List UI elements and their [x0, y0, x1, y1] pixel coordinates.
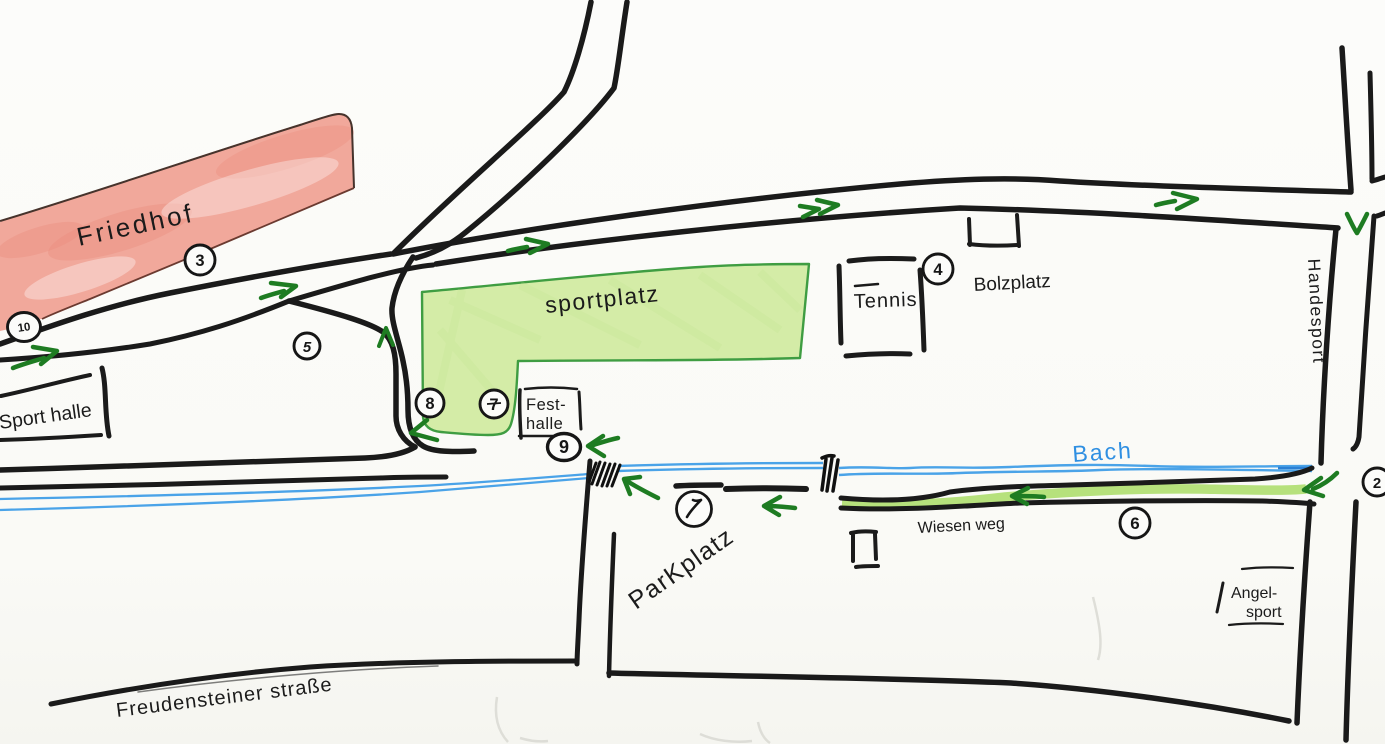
svg-text:5: 5: [303, 339, 312, 356]
svg-text:4: 4: [933, 261, 943, 279]
svg-text:8: 8: [425, 395, 434, 413]
svg-text:Tennis: Tennis: [853, 289, 918, 313]
svg-text:7: 7: [489, 396, 498, 414]
svg-text:Bach: Bach: [1072, 437, 1134, 467]
svg-text:9: 9: [559, 437, 569, 457]
svg-text:Angel-: Angel-: [1231, 585, 1277, 602]
svg-text:10: 10: [17, 321, 31, 335]
svg-text:6: 6: [1130, 514, 1139, 533]
svg-text:2: 2: [1373, 475, 1381, 492]
svg-text:sport: sport: [1246, 604, 1282, 621]
svg-text:Bolzplatz: Bolzplatz: [973, 271, 1051, 296]
svg-text:Fest-: Fest-: [526, 396, 566, 414]
svg-text:3: 3: [195, 252, 204, 270]
svg-text:halle: halle: [526, 415, 563, 433]
